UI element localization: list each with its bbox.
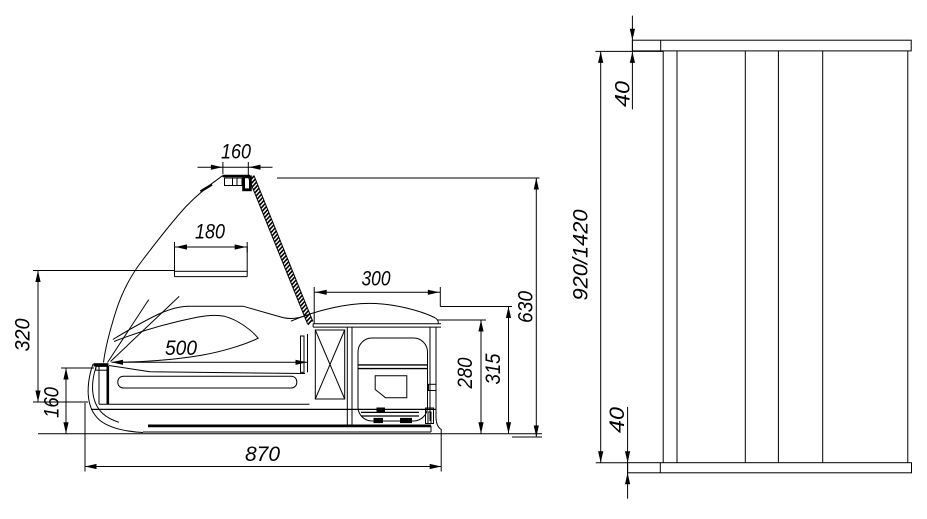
svg-text:180: 180 — [195, 221, 225, 244]
svg-text:160: 160 — [221, 141, 251, 164]
svg-text:280: 280 — [454, 357, 477, 389]
svg-text:40: 40 — [612, 81, 635, 107]
svg-text:160: 160 — [41, 387, 64, 418]
svg-text:870: 870 — [245, 443, 280, 466]
svg-text:920/1420: 920/1420 — [570, 209, 593, 300]
svg-text:320: 320 — [12, 318, 35, 351]
svg-text:40: 40 — [606, 407, 629, 433]
svg-text:300: 300 — [362, 268, 391, 291]
svg-text:315: 315 — [482, 353, 505, 384]
svg-text:500: 500 — [165, 337, 197, 360]
svg-text:630: 630 — [514, 291, 537, 323]
